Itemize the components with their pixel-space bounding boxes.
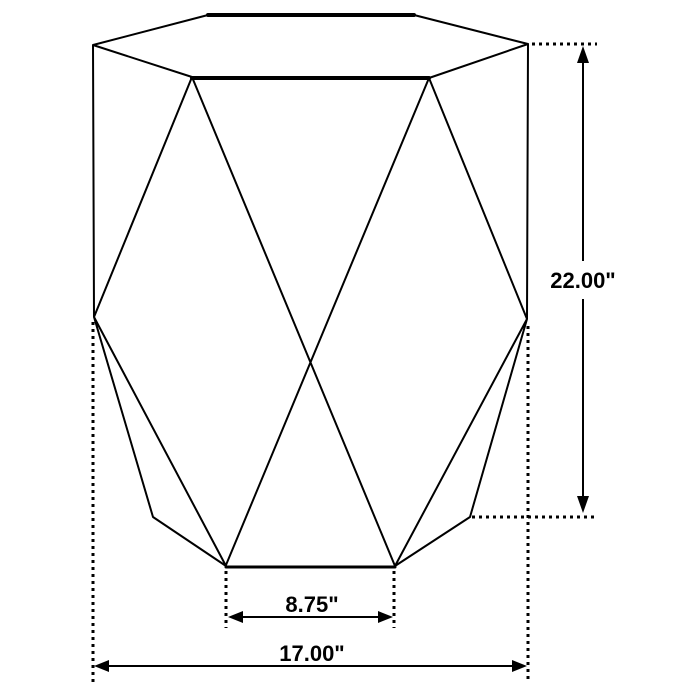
height-arrow-down-icon [577, 496, 589, 513]
dimension-diagram-page: 22.00" 8.75" 17.00" [0, 0, 700, 700]
extension-dotted-lines [93, 44, 597, 683]
table-facet-edges [93, 15, 528, 566]
table-outline [93, 15, 528, 567]
overall-width-dimension: 17.00" [94, 641, 527, 672]
height-dimension: 22.00" [550, 46, 615, 513]
height-dimension-label: 22.00" [550, 268, 615, 293]
tabletop-thick-edges [192, 15, 429, 78]
furniture-dimension-diagram: 22.00" 8.75" 17.00" [0, 0, 700, 700]
height-arrow-up-icon [577, 46, 589, 63]
base-width-arrow-left-icon [228, 611, 243, 623]
overall-width-arrow-right-icon [512, 660, 527, 672]
base-width-arrow-right-icon [378, 611, 393, 623]
overall-width-dimension-label: 17.00" [279, 641, 344, 666]
base-width-dimension: 8.75" [228, 592, 393, 623]
base-width-dimension-label: 8.75" [285, 592, 338, 617]
overall-width-arrow-left-icon [94, 660, 109, 672]
